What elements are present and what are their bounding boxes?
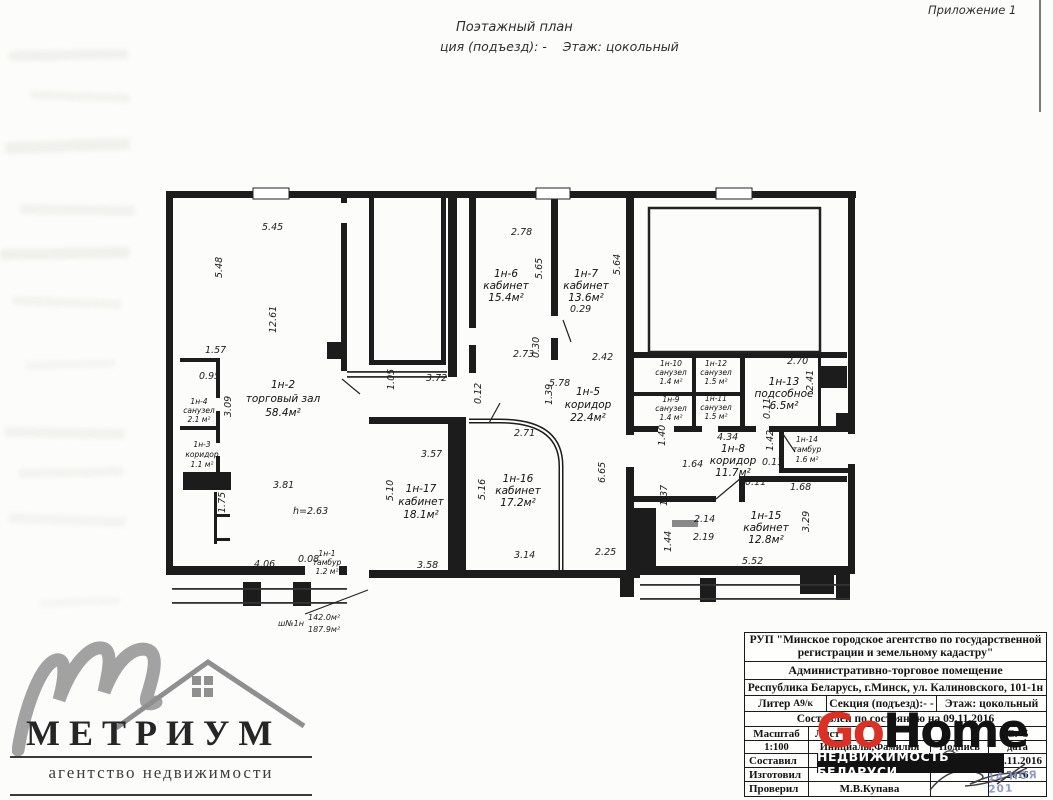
room-label-1н-7: 1н-7 bbox=[574, 268, 598, 280]
dimension-label: 5.52 bbox=[742, 556, 763, 567]
room-label-1н-9: санузел bbox=[655, 404, 687, 413]
dimension-label: 6.65 bbox=[597, 462, 608, 483]
name-checked: М.В.Купава bbox=[808, 782, 930, 796]
dimension-label: 5.65 bbox=[534, 258, 545, 279]
room-label-1н-7: 13.6м² bbox=[568, 292, 604, 304]
room-label-1н-3: 1н-3 bbox=[193, 440, 210, 449]
room-label-1н-10: санузел bbox=[655, 368, 687, 377]
room-label-1н-9: 1н-9 bbox=[662, 395, 679, 404]
dimension-label: 1.64 bbox=[682, 459, 703, 470]
room-label-1н-17: 18.1м² bbox=[403, 509, 439, 521]
dimension-label: 5.10 bbox=[385, 480, 396, 501]
room-label-1н-7: кабинет bbox=[563, 280, 609, 292]
room-label-1н-1: 1н-1 bbox=[318, 549, 335, 558]
dimension-label: 1.68 bbox=[790, 482, 811, 493]
role-made: Изготовил bbox=[745, 768, 808, 781]
dimension-label: h=2.63 bbox=[293, 506, 328, 517]
room-label-1н-12: 1.5 м² bbox=[705, 377, 728, 386]
room-label-1н-6: 15.4м² bbox=[488, 292, 524, 304]
room-label-1н-15: кабинет bbox=[743, 522, 789, 534]
room-label-1н-11: санузел bbox=[700, 403, 732, 412]
dimension-label: 3.81 bbox=[273, 480, 294, 491]
room-label-1н-11: 1.5 м² bbox=[705, 412, 728, 421]
room-label-1н-6: 1н-6 bbox=[494, 268, 518, 280]
role-compiled: Составил bbox=[745, 754, 808, 767]
room-label-1н-4: 2.1 м² bbox=[188, 415, 211, 424]
dimension-label: 1.75 bbox=[217, 492, 228, 513]
room-label-1н-1: 1.2 м² bbox=[316, 567, 339, 576]
room-label-1н-3: коридор bbox=[185, 450, 219, 459]
dimension-label: 0.29 bbox=[570, 304, 591, 315]
dimension-label: 3.57 bbox=[421, 449, 442, 460]
room-label-1н-1: тамбур bbox=[313, 558, 342, 567]
dimension-label: 1.05 bbox=[386, 369, 397, 390]
dimension-label: 1.57 bbox=[205, 345, 226, 356]
dimension-label: 3.09 bbox=[223, 396, 234, 417]
room-label-1н-4: санузел bbox=[183, 406, 215, 415]
room-label-1н-8: коридор bbox=[710, 455, 757, 467]
dimension-label: 5.48 bbox=[214, 257, 225, 278]
dimension-label: 1.37 bbox=[659, 485, 670, 506]
room-label-1н-5: 22.4м² bbox=[570, 412, 606, 424]
dimension-label: 3.58 bbox=[417, 560, 438, 571]
door-gaps bbox=[216, 203, 769, 575]
room-label-1н-15: 1н-15 bbox=[751, 510, 782, 522]
room-label-1н-16: кабинет bbox=[495, 485, 541, 497]
gohome-tagline-bar: НЕДВИЖИМОСТЬ БЕЛАРУСИ bbox=[817, 754, 1004, 773]
room-label-1н-11: 1н-11 bbox=[705, 394, 727, 403]
plan-labels: 5.455.4812.611.570.953.093.81h=2.631.754… bbox=[183, 222, 821, 576]
liter-label: Литер bbox=[758, 698, 790, 710]
room-label-1н-16: 17.2м² bbox=[500, 497, 536, 509]
dimension-label: 2.71 bbox=[514, 428, 535, 439]
room-label-1н-2: 58.4м² bbox=[265, 407, 301, 419]
signature-cell bbox=[930, 782, 988, 796]
dimension-label: 2.19 bbox=[693, 532, 714, 543]
dimension-label: 3.72 bbox=[426, 373, 447, 384]
date-stamp: 14 НОЯ 201 bbox=[987, 768, 1053, 795]
room-label-1н-12: санузел bbox=[700, 368, 732, 377]
metrium-window bbox=[192, 676, 213, 697]
room-label-1н-8: 11.7м² bbox=[715, 467, 751, 479]
room-label-1н-13: 1н-13 bbox=[769, 376, 800, 388]
room-label-1н-14: тамбур bbox=[793, 445, 822, 454]
dimension-label: 0.12 bbox=[473, 383, 484, 404]
room-label-1н-15: 12.8м² bbox=[748, 534, 784, 546]
room-label-1н-14: 1н-14 bbox=[796, 435, 818, 444]
dimension-label: 1.44 bbox=[663, 531, 674, 552]
dimension-label: 1.40 bbox=[657, 425, 668, 446]
object-address: Республика Беларусь, г.Минск, ул. Калино… bbox=[745, 680, 1046, 695]
dimension-label: 2.78 bbox=[511, 227, 532, 238]
room-label-1н-4: 1н-4 bbox=[190, 397, 207, 406]
dimension-label: 5.64 bbox=[612, 254, 623, 275]
metrium-rule-bottom bbox=[10, 794, 312, 796]
object-type: Административно-торговое помещение bbox=[745, 662, 1046, 679]
metrium-tagline: агентство недвижимости bbox=[10, 763, 312, 783]
scanned-floor-plan-page: { "page": { "annex": "Приложение 1", "ti… bbox=[0, 0, 1053, 800]
dimension-label: 2.70 bbox=[787, 356, 808, 367]
role-checked: Проверил bbox=[745, 782, 808, 796]
dimension-label: 3.14 bbox=[514, 550, 535, 561]
dimension-label: 5.16 bbox=[477, 479, 488, 500]
room-label-1н-10: 1н-10 bbox=[660, 359, 682, 368]
dimension-label: 1.39 bbox=[544, 384, 555, 405]
room-label-1н-9: 1.4 м² bbox=[660, 413, 683, 422]
room-label-1н-5: коридор bbox=[565, 399, 612, 411]
org-name-line1: РУП "Минское городское агентство по госу… bbox=[750, 634, 1042, 647]
room-label-1н-5: 1н-5 bbox=[576, 386, 600, 398]
room-label-1н-2: торговый зал bbox=[246, 393, 321, 405]
scale-label: Масштаб bbox=[745, 727, 808, 740]
dimension-label: 2.14 bbox=[694, 514, 715, 525]
dimension-label: 5.45 bbox=[262, 222, 283, 233]
dimension-label: 1.42 bbox=[765, 430, 776, 451]
dimension-label: 12.61 bbox=[268, 306, 279, 333]
dimension-label: 3.29 bbox=[801, 511, 812, 532]
scale-value: 1:100 bbox=[745, 741, 808, 753]
metrium-rule-top bbox=[10, 756, 312, 758]
unlabeled-room-outline bbox=[649, 208, 820, 352]
dimension-label: 0.11 bbox=[762, 457, 783, 468]
room-label-1н-14: 1.6 м² bbox=[796, 455, 819, 464]
dimension-label: 2.25 bbox=[595, 547, 616, 558]
liter-value: А9/к bbox=[793, 699, 813, 709]
dimension-label: 0.95 bbox=[199, 371, 220, 382]
room-label-1н-8: 1н-8 bbox=[721, 443, 745, 455]
room-label-1н-3: 1.1 м² bbox=[191, 460, 214, 469]
room-label-1н-13: подсобное bbox=[755, 388, 814, 400]
room-label-1н-10: 1.4 м² bbox=[660, 377, 683, 386]
room-label-1н-6: кабинет bbox=[483, 280, 529, 292]
room-label-1н-2: 1н-2 bbox=[271, 379, 295, 391]
room-label-1н-12: 1н-12 bbox=[705, 359, 727, 368]
dimension-label: 2.42 bbox=[592, 352, 613, 363]
room-label-1н-16: 1н-16 bbox=[503, 473, 534, 485]
metrium-name: МЕТРИУМ bbox=[26, 712, 316, 754]
room-label-1н-17: 1н-17 bbox=[406, 483, 437, 495]
room-label-1н-13: 6.5м² bbox=[770, 400, 800, 412]
dimension-label: 0.30 bbox=[531, 337, 542, 358]
org-name-line2: регистрации и земельному кадастру" bbox=[798, 647, 994, 660]
room-label-1н-17: кабинет bbox=[398, 496, 444, 508]
dimension-label: 4.34 bbox=[717, 432, 738, 443]
dimension-label: 4.06 bbox=[254, 559, 275, 570]
